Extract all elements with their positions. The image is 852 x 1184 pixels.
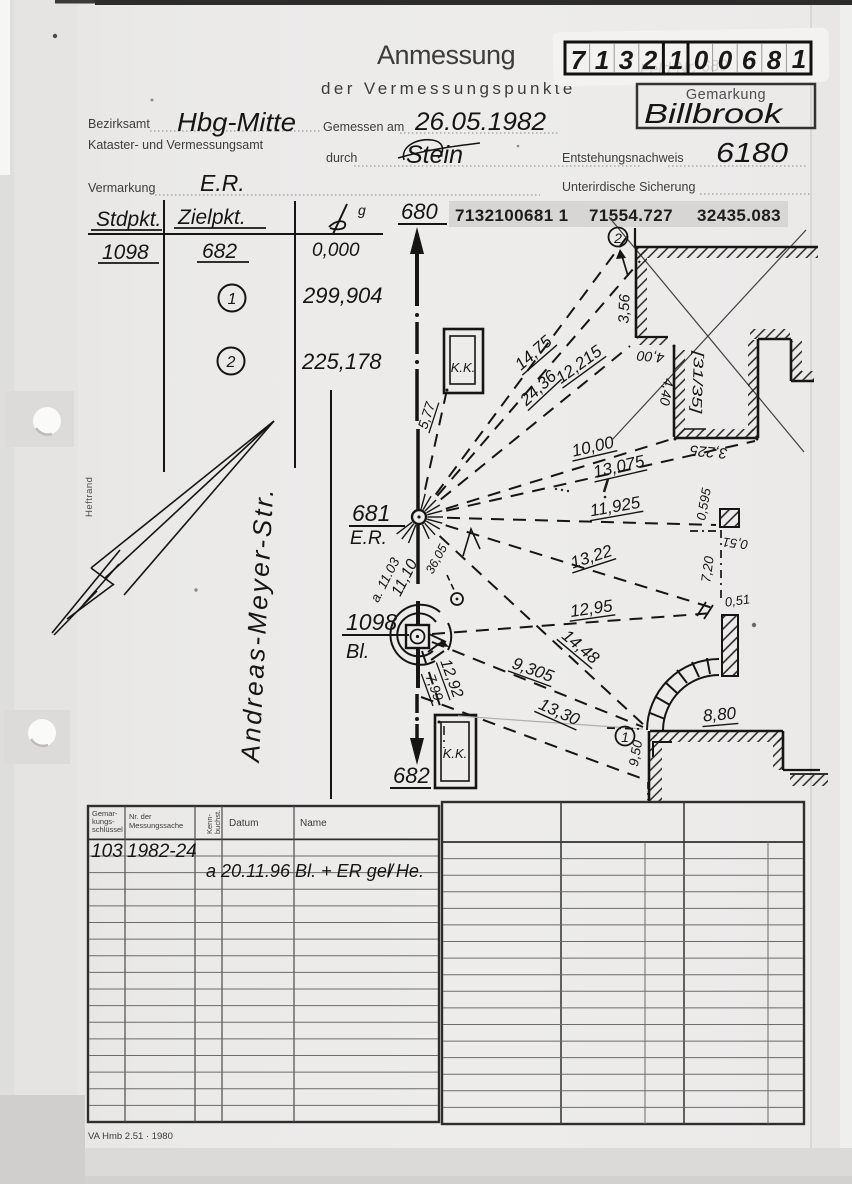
- svg-text:buchst.: buchst.: [213, 810, 222, 834]
- svg-text:Stdpkt.: Stdpkt.: [96, 208, 161, 231]
- svg-text:1: 1: [792, 44, 806, 74]
- svg-text:2: 2: [613, 230, 622, 246]
- svg-text:K.K.: K.K.: [443, 746, 468, 761]
- svg-text:682: 682: [202, 240, 237, 263]
- svg-text:VA Hmb 2.51 · 1980: VA Hmb 2.51 · 1980: [88, 1131, 173, 1142]
- svg-text:1: 1: [595, 45, 609, 75]
- svg-text:26.05.1982: 26.05.1982: [414, 108, 546, 136]
- svg-text:682: 682: [393, 763, 430, 788]
- svg-text:7132100681 1: 7132100681 1: [455, 206, 569, 225]
- svg-text:0,000: 0,000: [312, 240, 360, 261]
- svg-text:0: 0: [718, 45, 733, 75]
- svg-text:3,56: 3,56: [615, 293, 633, 323]
- svg-text:schlüssel: schlüssel: [92, 825, 123, 834]
- svg-text:Heftrand: Heftrand: [84, 477, 95, 517]
- svg-text:Vermarkung: Vermarkung: [88, 181, 155, 195]
- svg-text:3,225: 3,225: [689, 441, 729, 461]
- svg-text:Datum: Datum: [229, 818, 258, 829]
- svg-text:680: 680: [401, 199, 438, 224]
- svg-text:1: 1: [669, 45, 683, 75]
- svg-text:8,80: 8,80: [702, 704, 737, 726]
- svg-text:E.R.: E.R.: [350, 528, 387, 549]
- svg-text:299,904: 299,904: [302, 283, 383, 308]
- svg-text:Entstehungsnachweis: Entstehungsnachweis: [562, 151, 684, 165]
- svg-text:7: 7: [571, 45, 587, 75]
- svg-text:Billbrook: Billbrook: [644, 98, 785, 129]
- svg-text:Nr. der: Nr. der: [129, 812, 152, 821]
- svg-text:0: 0: [694, 45, 709, 75]
- svg-text:8: 8: [767, 45, 782, 75]
- svg-text:Bl.: Bl.: [346, 641, 369, 663]
- svg-text:Zielpkt.: Zielpkt.: [177, 206, 246, 229]
- svg-text:[31/35]: [31/35]: [689, 349, 707, 415]
- svg-text:1982-24: 1982-24: [127, 841, 197, 862]
- svg-text:4,00: 4,00: [636, 348, 665, 366]
- svg-text:681: 681: [352, 500, 390, 526]
- svg-text:2: 2: [226, 354, 236, 371]
- svg-text:1: 1: [228, 291, 237, 308]
- svg-text:Anmessung: Anmessung: [377, 40, 515, 70]
- svg-text:32435.083: 32435.083: [697, 206, 781, 225]
- svg-text:Messungssache: Messungssache: [129, 821, 183, 830]
- svg-text:durch: durch: [326, 151, 357, 165]
- svg-text:1: 1: [621, 729, 629, 745]
- svg-text:6180: 6180: [716, 137, 788, 168]
- svg-text:2: 2: [642, 45, 658, 75]
- svg-text:Gemessen am: Gemessen am: [323, 120, 404, 134]
- svg-text:E.R.: E.R.: [200, 170, 245, 196]
- svg-text:Hbg-Mitte: Hbg-Mitte: [177, 107, 296, 137]
- svg-text:1098: 1098: [346, 609, 397, 635]
- svg-text:225,178: 225,178: [301, 349, 382, 374]
- svg-text:3: 3: [619, 45, 634, 75]
- svg-text:1098: 1098: [102, 241, 149, 264]
- svg-text:6: 6: [742, 45, 757, 75]
- svg-text:Unterirdische Sicherung: Unterirdische Sicherung: [562, 180, 695, 194]
- svg-text:g: g: [358, 202, 366, 218]
- svg-text:Bezirksamt: Bezirksamt: [88, 117, 150, 131]
- svg-text:a 20.11.96 Bl. + ER gel̸ He.: a 20.11.96 Bl. + ER gel̸ He.: [206, 861, 424, 881]
- svg-text:0,51: 0,51: [722, 534, 749, 552]
- svg-text:Kataster- und Vermessungsamt: Kataster- und Vermessungsamt: [88, 138, 264, 152]
- svg-text:der Vermessungspunkte: der Vermessungspunkte: [321, 79, 576, 98]
- svg-text:Name: Name: [300, 818, 327, 829]
- svg-text:K.K.: K.K.: [451, 360, 476, 375]
- svg-text:71554.727: 71554.727: [589, 206, 673, 225]
- svg-text:103: 103: [91, 841, 123, 862]
- svg-text:Stein: Stein: [406, 141, 463, 169]
